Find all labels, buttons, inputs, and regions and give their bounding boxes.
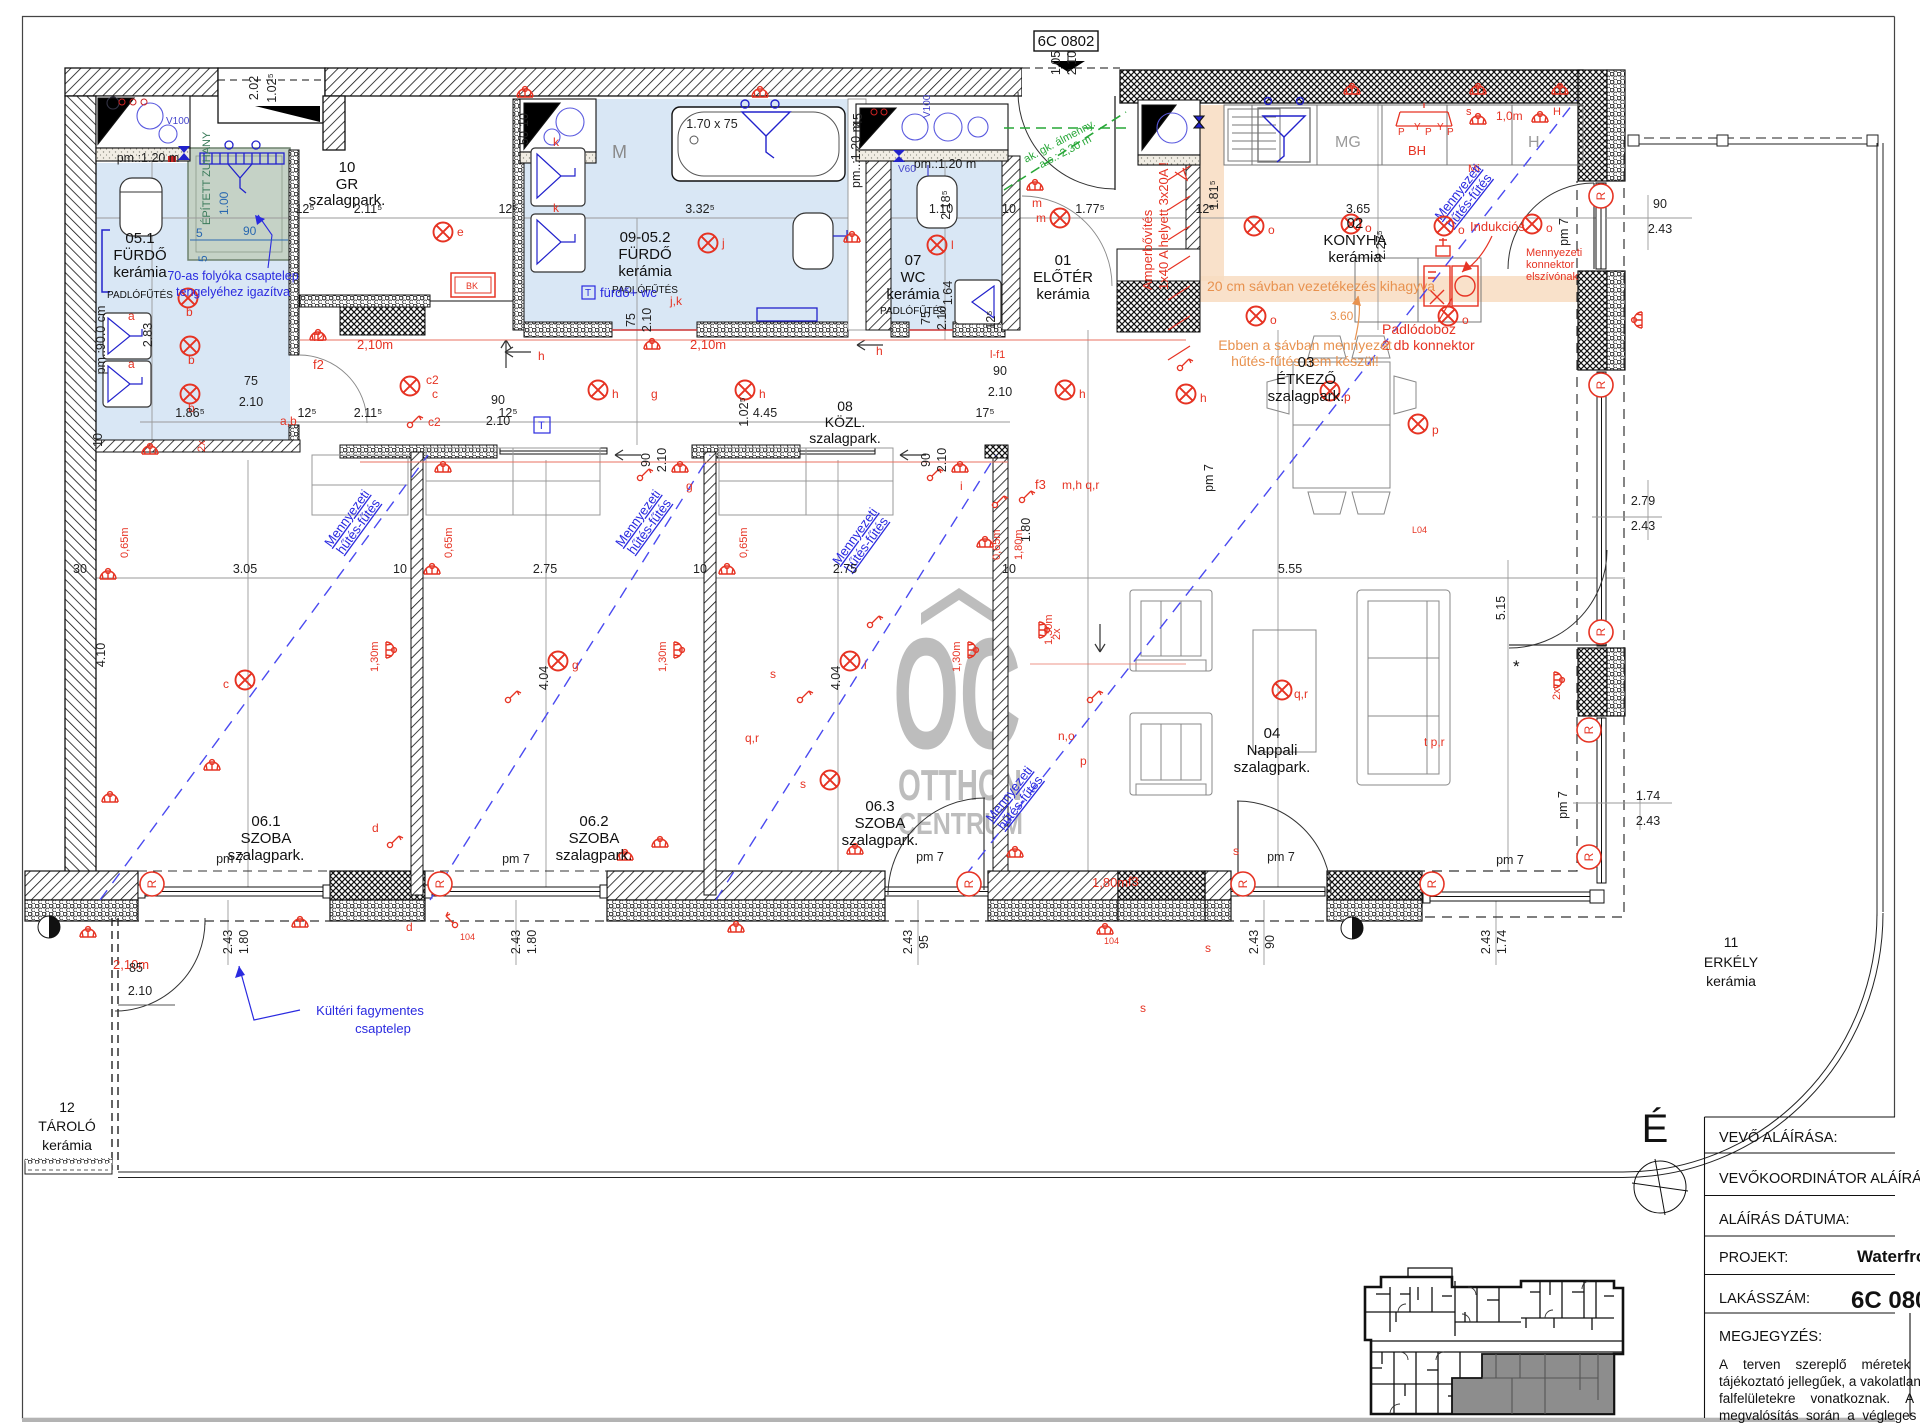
svg-text:pm 7: pm 7: [1267, 850, 1295, 864]
svg-text:1.74: 1.74: [1495, 930, 1509, 954]
svg-text:q,r: q,r: [1294, 687, 1308, 701]
svg-text:1.74: 1.74: [1636, 789, 1660, 803]
svg-text:08: 08: [837, 398, 853, 414]
svg-text:90: 90: [993, 364, 1007, 378]
svg-text:6C 0802: 6C 0802: [1038, 33, 1095, 50]
svg-text:PADLÓFŰTÉS: PADLÓFŰTÉS: [107, 287, 173, 301]
svg-text:pm 7: pm 7: [1202, 464, 1216, 492]
svg-text:m: m: [1036, 211, 1046, 225]
svg-text:4.45: 4.45: [753, 406, 777, 420]
svg-text:03: 03: [1298, 354, 1315, 371]
svg-text:kerámia: kerámia: [1036, 286, 1090, 303]
svg-text:ÉTKEZŐ: ÉTKEZŐ: [1276, 371, 1336, 388]
svg-text:5.55: 5.55: [1278, 562, 1302, 576]
svg-text:VEVŐKOORDINÁTOR ALÁÍRÁSA:: VEVŐKOORDINÁTOR ALÁÍRÁSA:: [1719, 1170, 1920, 1187]
svg-text:4.10: 4.10: [94, 643, 108, 667]
svg-text:1.00: 1.00: [217, 191, 231, 215]
svg-text:0,65m: 0,65m: [443, 527, 455, 558]
svg-text:PROJEKT:: PROJEKT:: [1719, 1250, 1788, 1266]
svg-text:falfelületekre vonatkoznak.: falfelületekre vonatkoznak. A: [1719, 1391, 1914, 1406]
svg-text:i: i: [864, 658, 867, 672]
svg-text:06.1: 06.1: [251, 813, 280, 830]
svg-text:KÖZL.: KÖZL.: [825, 413, 865, 430]
svg-text:f2: f2: [313, 329, 324, 344]
svg-text:2.18⁵: 2.18⁵: [939, 190, 953, 220]
svg-text:12⁵: 12⁵: [984, 310, 998, 329]
svg-text:megvalósítás során a végleg: megvalósítás során a végleges: [1719, 1408, 1917, 1423]
svg-text:2.43: 2.43: [901, 930, 915, 954]
svg-text:T: T: [538, 420, 545, 432]
svg-text:P: P: [1425, 127, 1432, 138]
svg-text:1,30m: 1,30m: [657, 641, 669, 672]
svg-text:11: 11: [1724, 934, 1739, 950]
svg-text:95: 95: [917, 935, 931, 949]
svg-text:1.86⁵: 1.86⁵: [175, 406, 205, 420]
svg-text:2.75: 2.75: [533, 562, 557, 576]
svg-text:1.80: 1.80: [237, 930, 251, 954]
svg-text:20 cm sávban vezetékezés kihag: 20 cm sávban vezetékezés kihagyva: [1207, 278, 1435, 294]
svg-text:s: s: [1205, 941, 1211, 955]
svg-text:o: o: [1268, 223, 1275, 237]
svg-text:H: H: [1553, 106, 1561, 118]
svg-text:V100: V100: [166, 116, 190, 127]
svg-text:Y: Y: [1414, 122, 1421, 133]
svg-text:2.43: 2.43: [1648, 222, 1672, 236]
svg-text:g: g: [686, 479, 693, 493]
svg-text:d: d: [372, 821, 379, 835]
svg-text:tájékoztató jellegűek, a vakol: tájékoztató jellegűek, a vakolatlan: [1719, 1374, 1920, 1389]
svg-text:1,30m: 1,30m: [951, 641, 963, 672]
svg-text:pm 7: pm 7: [916, 850, 944, 864]
svg-text:pm 7: pm 7: [1557, 218, 1571, 246]
svg-text:m: m: [1032, 196, 1042, 210]
svg-text:T: T: [585, 288, 591, 299]
svg-text:02: 02: [1347, 215, 1364, 232]
svg-text:01: 01: [1055, 252, 1072, 269]
svg-text:SZOBA: SZOBA: [855, 815, 906, 832]
svg-text:MG: MG: [1335, 134, 1361, 151]
svg-text:2.43: 2.43: [1247, 930, 1261, 954]
svg-text:pm.:90.0 cm: pm.:90.0 cm: [94, 306, 108, 375]
svg-text:90: 90: [1653, 197, 1667, 211]
svg-text:10: 10: [339, 159, 356, 176]
svg-text:4.04: 4.04: [537, 666, 551, 690]
svg-text:fürdő+ wc: fürdő+ wc: [600, 285, 657, 300]
svg-text:P: P: [1398, 127, 1405, 138]
svg-text:elszívónak: elszívónak: [1526, 271, 1578, 283]
svg-text:j: j: [721, 236, 725, 250]
svg-text:2.10: 2.10: [1065, 51, 1079, 75]
svg-text:2.43: 2.43: [221, 930, 235, 954]
svg-text:o: o: [1546, 221, 1553, 235]
svg-text:d: d: [406, 920, 413, 934]
svg-text:WC: WC: [901, 269, 926, 286]
svg-text:1.05: 1.05: [1049, 51, 1063, 75]
svg-text:5.15: 5.15: [1494, 596, 1508, 620]
svg-text:5: 5: [196, 255, 210, 262]
svg-text:V100: V100: [922, 94, 933, 118]
svg-text:p: p: [1344, 390, 1351, 404]
svg-text:Waterfron: Waterfron: [1857, 1247, 1920, 1266]
svg-text:1.02⁵: 1.02⁵: [265, 73, 279, 103]
svg-text:szalagpark.: szalagpark.: [1234, 759, 1311, 776]
svg-text:*: *: [1513, 657, 1520, 676]
svg-text:1.02⁵: 1.02⁵: [737, 397, 751, 427]
svg-text:2.43: 2.43: [509, 930, 523, 954]
svg-text:a: a: [128, 309, 135, 323]
svg-text:10: 10: [91, 433, 105, 447]
svg-text:GR: GR: [336, 176, 359, 193]
svg-text:h: h: [1200, 391, 1207, 405]
svg-text:o: o: [1458, 223, 1465, 237]
svg-text:s: s: [770, 667, 776, 681]
svg-text:MEGJEGYZÉS:: MEGJEGYZÉS:: [1719, 1328, 1822, 1345]
svg-text:pm 7: pm 7: [1556, 791, 1570, 819]
svg-text:12⁵: 12⁵: [297, 406, 316, 420]
svg-text:kerámia: kerámia: [42, 1137, 92, 1153]
svg-text:90: 90: [919, 453, 933, 467]
svg-text:2 db konnektor: 2 db konnektor: [1382, 337, 1475, 353]
svg-text:k: k: [553, 201, 560, 215]
svg-text:kerámia: kerámia: [618, 263, 672, 280]
svg-text:2.10: 2.10: [988, 385, 1012, 399]
svg-text:75: 75: [624, 313, 638, 327]
svg-text:0,65m: 0,65m: [991, 529, 1003, 560]
svg-text:e: e: [457, 225, 464, 239]
svg-text:konnektor: konnektor: [1526, 259, 1575, 271]
svg-text:l-f1: l-f1: [990, 349, 1005, 361]
svg-text:c2: c2: [428, 415, 441, 429]
svg-text:pm..:1.20 m: pm..:1.20 m: [849, 122, 863, 188]
svg-text:h: h: [538, 349, 545, 363]
svg-text:szalagpark.: szalagpark.: [1268, 388, 1345, 405]
svg-text:t p,r: t p,r: [1424, 735, 1445, 749]
svg-text:75: 75: [919, 311, 933, 325]
svg-text:pm 7: pm 7: [216, 852, 244, 866]
svg-text:g: g: [651, 387, 658, 401]
svg-text:0,65m: 0,65m: [119, 527, 131, 558]
svg-text:pm 7: pm 7: [502, 852, 530, 866]
svg-text:V60: V60: [898, 164, 916, 175]
svg-text:90: 90: [1263, 935, 1277, 949]
svg-text:s: s: [1140, 1001, 1146, 1015]
svg-text:75: 75: [244, 374, 258, 388]
svg-text:2.10: 2.10: [128, 984, 152, 998]
svg-text:VEVŐ ALÁÍRÁSA:: VEVŐ ALÁÍRÁSA:: [1719, 1129, 1837, 1146]
svg-text:l: l: [951, 238, 954, 252]
svg-text:10: 10: [517, 113, 531, 127]
svg-text:2.83: 2.83: [141, 323, 155, 347]
svg-text:2.10: 2.10: [486, 414, 510, 428]
svg-text:pm 7: pm 7: [1496, 853, 1524, 867]
svg-text:h: h: [876, 344, 883, 358]
svg-text:Y: Y: [1437, 122, 1444, 133]
svg-text:M: M: [612, 142, 627, 162]
svg-text:06.3: 06.3: [865, 798, 894, 815]
svg-text:1.80: 1.80: [525, 930, 539, 954]
svg-text:SZOBA: SZOBA: [569, 830, 620, 847]
svg-text:2.11⁵: 2.11⁵: [354, 406, 383, 420]
svg-text:1.70 x 75: 1.70 x 75: [686, 117, 737, 131]
svg-text:h: h: [1079, 387, 1086, 401]
svg-text:1.81⁵: 1.81⁵: [1207, 180, 1221, 210]
svg-text:TÁROLÓ: TÁROLÓ: [38, 1118, 96, 1134]
svg-text:70-as folyóka csaptelep: 70-as folyóka csaptelep: [167, 269, 298, 283]
svg-text:104: 104: [460, 932, 475, 942]
svg-text:n,o: n,o: [1058, 729, 1075, 743]
svg-text:ERKÉLY: ERKÉLY: [1704, 954, 1759, 970]
svg-text:Nappali: Nappali: [1247, 742, 1298, 759]
svg-text:f3: f3: [1128, 874, 1139, 889]
svg-text:c2: c2: [426, 373, 439, 387]
svg-text:45: 45: [851, 113, 865, 127]
svg-text:2.79: 2.79: [1631, 494, 1655, 508]
svg-text:06.2: 06.2: [579, 813, 608, 830]
svg-text:LAKÁSSZÁM:: LAKÁSSZÁM:: [1719, 1290, 1810, 1307]
svg-text:3.32⁵: 3.32⁵: [685, 202, 715, 216]
svg-text:1.64: 1.64: [941, 281, 955, 305]
svg-text:2,10m: 2,10m: [690, 337, 726, 352]
svg-text:b: b: [186, 305, 193, 319]
svg-text:s: s: [800, 777, 806, 791]
svg-text:12: 12: [59, 1099, 75, 1115]
svg-text:50: 50: [517, 131, 531, 145]
svg-text:s: s: [1466, 106, 1472, 118]
svg-text:05.1: 05.1: [125, 230, 154, 247]
svg-text:m,h q,r: m,h q,r: [1062, 478, 1099, 492]
svg-text:4.04: 4.04: [829, 666, 843, 690]
svg-text:É: É: [1642, 1106, 1669, 1151]
svg-text:1,30m: 1,30m: [369, 641, 381, 672]
svg-text:c: c: [432, 387, 438, 401]
svg-text:Kültéri fagymentes: Kültéri fagymentes: [316, 1003, 424, 1018]
svg-text:szalagpark.: szalagpark.: [809, 430, 881, 446]
svg-text:kerámia: kerámia: [113, 264, 167, 281]
svg-text:2.43: 2.43: [1479, 930, 1493, 954]
svg-text:5: 5: [196, 226, 203, 240]
svg-text:6C 080: 6C 080: [1851, 1287, 1920, 1314]
svg-text:Amperbővítés: Amperbővítés: [1140, 209, 1155, 290]
svg-text:szalagpark.: szalagpark.: [842, 832, 919, 849]
svg-text:2.11⁵: 2.11⁵: [354, 202, 383, 216]
svg-text:szalagpark.: szalagpark.: [556, 847, 633, 864]
svg-text:b: b: [188, 353, 195, 367]
svg-text:17⁵: 17⁵: [975, 406, 994, 420]
svg-text:90: 90: [639, 453, 653, 467]
svg-text:FÜRDŐ: FÜRDŐ: [113, 246, 166, 264]
svg-text:09-05.2: 09-05.2: [620, 229, 671, 246]
svg-text:2.43: 2.43: [1631, 519, 1655, 533]
svg-text:90: 90: [491, 393, 505, 407]
svg-text:c: c: [223, 677, 229, 691]
svg-text:pm.:1.20 m: pm.:1.20 m: [117, 151, 180, 165]
svg-text:o: o: [1270, 313, 1277, 327]
svg-text:07: 07: [905, 252, 922, 269]
svg-text:2.10: 2.10: [640, 308, 654, 332]
svg-text:kerámia: kerámia: [886, 286, 940, 303]
svg-text:3.60: 3.60: [1330, 309, 1354, 323]
svg-text:2.10: 2.10: [239, 395, 263, 409]
svg-text:2.02: 2.02: [247, 76, 261, 100]
svg-text:j,k: j,k: [669, 294, 683, 308]
svg-text:2x: 2x: [1551, 688, 1563, 700]
svg-text:a: a: [128, 357, 135, 371]
svg-text:2.27⁵: 2.27⁵: [1374, 230, 1388, 260]
svg-text:85: 85: [129, 961, 143, 975]
svg-text:f2: f2: [313, 357, 324, 372]
svg-text:Mennyezeti: Mennyezeti: [1526, 247, 1582, 259]
svg-text:L04: L04: [1412, 525, 1427, 535]
svg-text:kerámia: kerámia: [1706, 973, 1756, 989]
svg-text:12⁵: 12⁵: [295, 202, 314, 216]
svg-text:1,80m: 1,80m: [1092, 875, 1128, 890]
svg-text:h: h: [612, 387, 619, 401]
svg-text:10: 10: [1002, 202, 1016, 216]
svg-text:s: s: [1233, 844, 1239, 858]
svg-text:90: 90: [243, 224, 257, 238]
svg-text:p: p: [1080, 754, 1087, 768]
svg-text:12⁵: 12⁵: [498, 202, 517, 216]
svg-text:FÜRDŐ: FÜRDŐ: [618, 245, 671, 263]
svg-text:2.43: 2.43: [1636, 814, 1660, 828]
svg-text:P: P: [1447, 127, 1454, 138]
svg-text:2.75: 2.75: [833, 562, 857, 576]
svg-text:10: 10: [393, 562, 407, 576]
svg-text:2x: 2x: [196, 440, 208, 452]
svg-text:g: g: [572, 658, 579, 672]
svg-text:2.10: 2.10: [655, 448, 669, 472]
svg-text:k: k: [553, 135, 560, 149]
svg-text:10: 10: [693, 562, 707, 576]
svg-text:a,b: a,b: [280, 414, 297, 428]
svg-text:tengelyéhez igazítva: tengelyéhez igazítva: [176, 285, 290, 299]
svg-text:04: 04: [1264, 725, 1281, 742]
svg-text:f3: f3: [1035, 477, 1046, 492]
svg-text:30: 30: [73, 562, 87, 576]
svg-text:Indukciós: Indukciós: [1470, 219, 1525, 234]
svg-text:csaptelep: csaptelep: [355, 1021, 411, 1036]
svg-text:ÉPÍTETT ZUHANY: ÉPÍTETT ZUHANY: [200, 131, 213, 225]
svg-text:0,65m: 0,65m: [738, 527, 750, 558]
svg-text:Ebben a sávban mennyezet: Ebben a sávban mennyezet: [1218, 337, 1392, 353]
svg-text:o: o: [1462, 313, 1469, 327]
svg-text:ELŐTÉR: ELŐTÉR: [1033, 269, 1093, 286]
svg-text:104: 104: [1104, 936, 1119, 946]
svg-text:ALÁÍRÁS DÁTUMA:: ALÁÍRÁS DÁTUMA:: [1719, 1211, 1850, 1228]
svg-text:3.05: 3.05: [233, 562, 257, 576]
svg-text:pm.:1.20 m: pm.:1.20 m: [914, 157, 977, 171]
svg-text:1,0m: 1,0m: [1496, 109, 1523, 123]
svg-text:Padlódoboz: Padlódoboz: [1382, 321, 1456, 337]
svg-text:BK: BK: [466, 281, 478, 291]
svg-text:p: p: [1432, 423, 1439, 437]
svg-text:2.10: 2.10: [935, 306, 949, 330]
svg-text:2x: 2x: [1051, 628, 1063, 640]
svg-text:1.80: 1.80: [1019, 518, 1033, 542]
svg-text:BH: BH: [1408, 143, 1426, 158]
svg-text:1x40 A helyett 3x20A !: 1x40 A helyett 3x20A !: [1156, 162, 1171, 290]
svg-text:q,r: q,r: [745, 731, 759, 745]
svg-text:SZOBA: SZOBA: [241, 830, 292, 847]
svg-text:i: i: [960, 479, 963, 493]
svg-text:h: h: [759, 387, 766, 401]
svg-text:A terven szereplő mér: A terven szereplő méretek: [1719, 1357, 1911, 1372]
svg-text:10: 10: [1002, 562, 1016, 576]
svg-text:2.10: 2.10: [935, 448, 949, 472]
svg-text:1.77⁵: 1.77⁵: [1075, 202, 1105, 216]
svg-text:3.65: 3.65: [1346, 202, 1370, 216]
svg-text:2,10m: 2,10m: [357, 337, 393, 352]
